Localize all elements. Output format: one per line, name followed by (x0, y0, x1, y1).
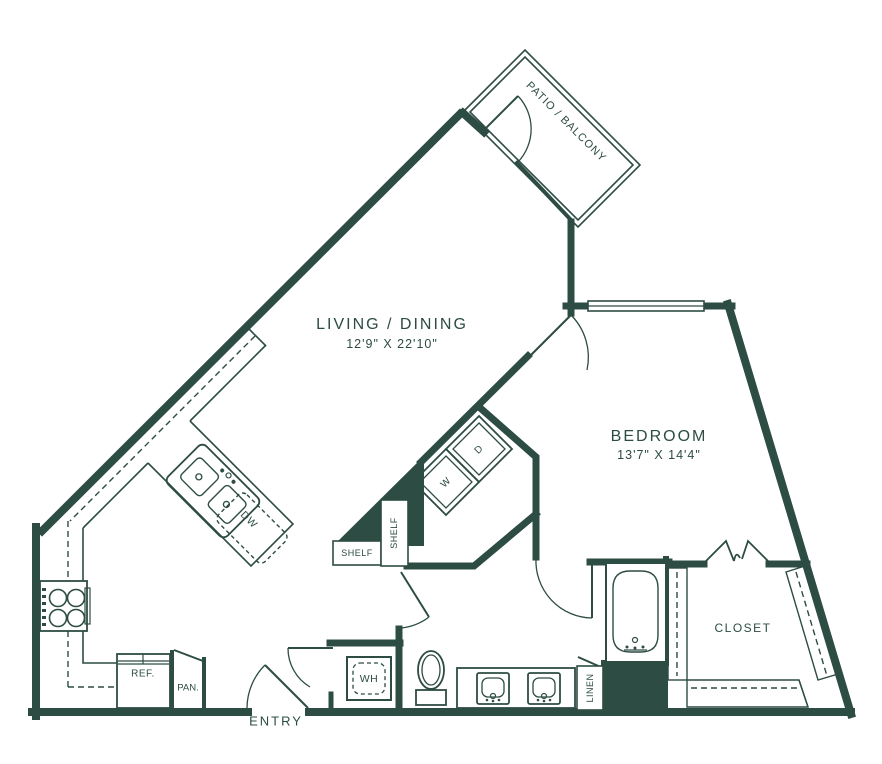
toilet (416, 651, 446, 705)
bedroom-door (529, 315, 588, 370)
pantry-label: PAN. (177, 683, 198, 694)
vanity (457, 668, 575, 708)
balcony-door (484, 96, 531, 162)
bathtub (606, 563, 666, 662)
laundry-door (401, 572, 429, 628)
refrigerator-label: REF. (131, 669, 155, 680)
water-heater-door (288, 648, 333, 687)
bedroom-label: BEDROOM (611, 428, 708, 446)
shelf-horizontal-label: SHELF (341, 548, 373, 558)
floor-plan: LIVING / DINING 12'9" X 22'10" BEDROOM 1… (0, 0, 882, 764)
closet-bifold-doors (704, 541, 770, 563)
water-heater-label: WH (360, 673, 379, 685)
refrigerator (117, 654, 170, 708)
bedroom-window (588, 301, 704, 311)
bathroom-door (536, 558, 592, 618)
interior-walls (172, 356, 807, 712)
living-dining-label: LIVING / DINING (316, 316, 468, 334)
balcony-railing (463, 50, 640, 227)
linen-label: LINEN (585, 673, 595, 702)
entry-door (247, 665, 308, 708)
shelf-vertical-label: SHELF (389, 517, 399, 549)
floor-plan-drawing (0, 0, 882, 764)
living-dining-dimensions: 12'9" X 22'10" (346, 337, 438, 351)
stove (40, 581, 90, 631)
entry-label: ENTRY (249, 714, 303, 729)
bedroom-dimensions: 13'7" X 14'4" (617, 448, 701, 462)
pantry-door (174, 650, 203, 661)
closet-label: CLOSET (714, 621, 771, 635)
